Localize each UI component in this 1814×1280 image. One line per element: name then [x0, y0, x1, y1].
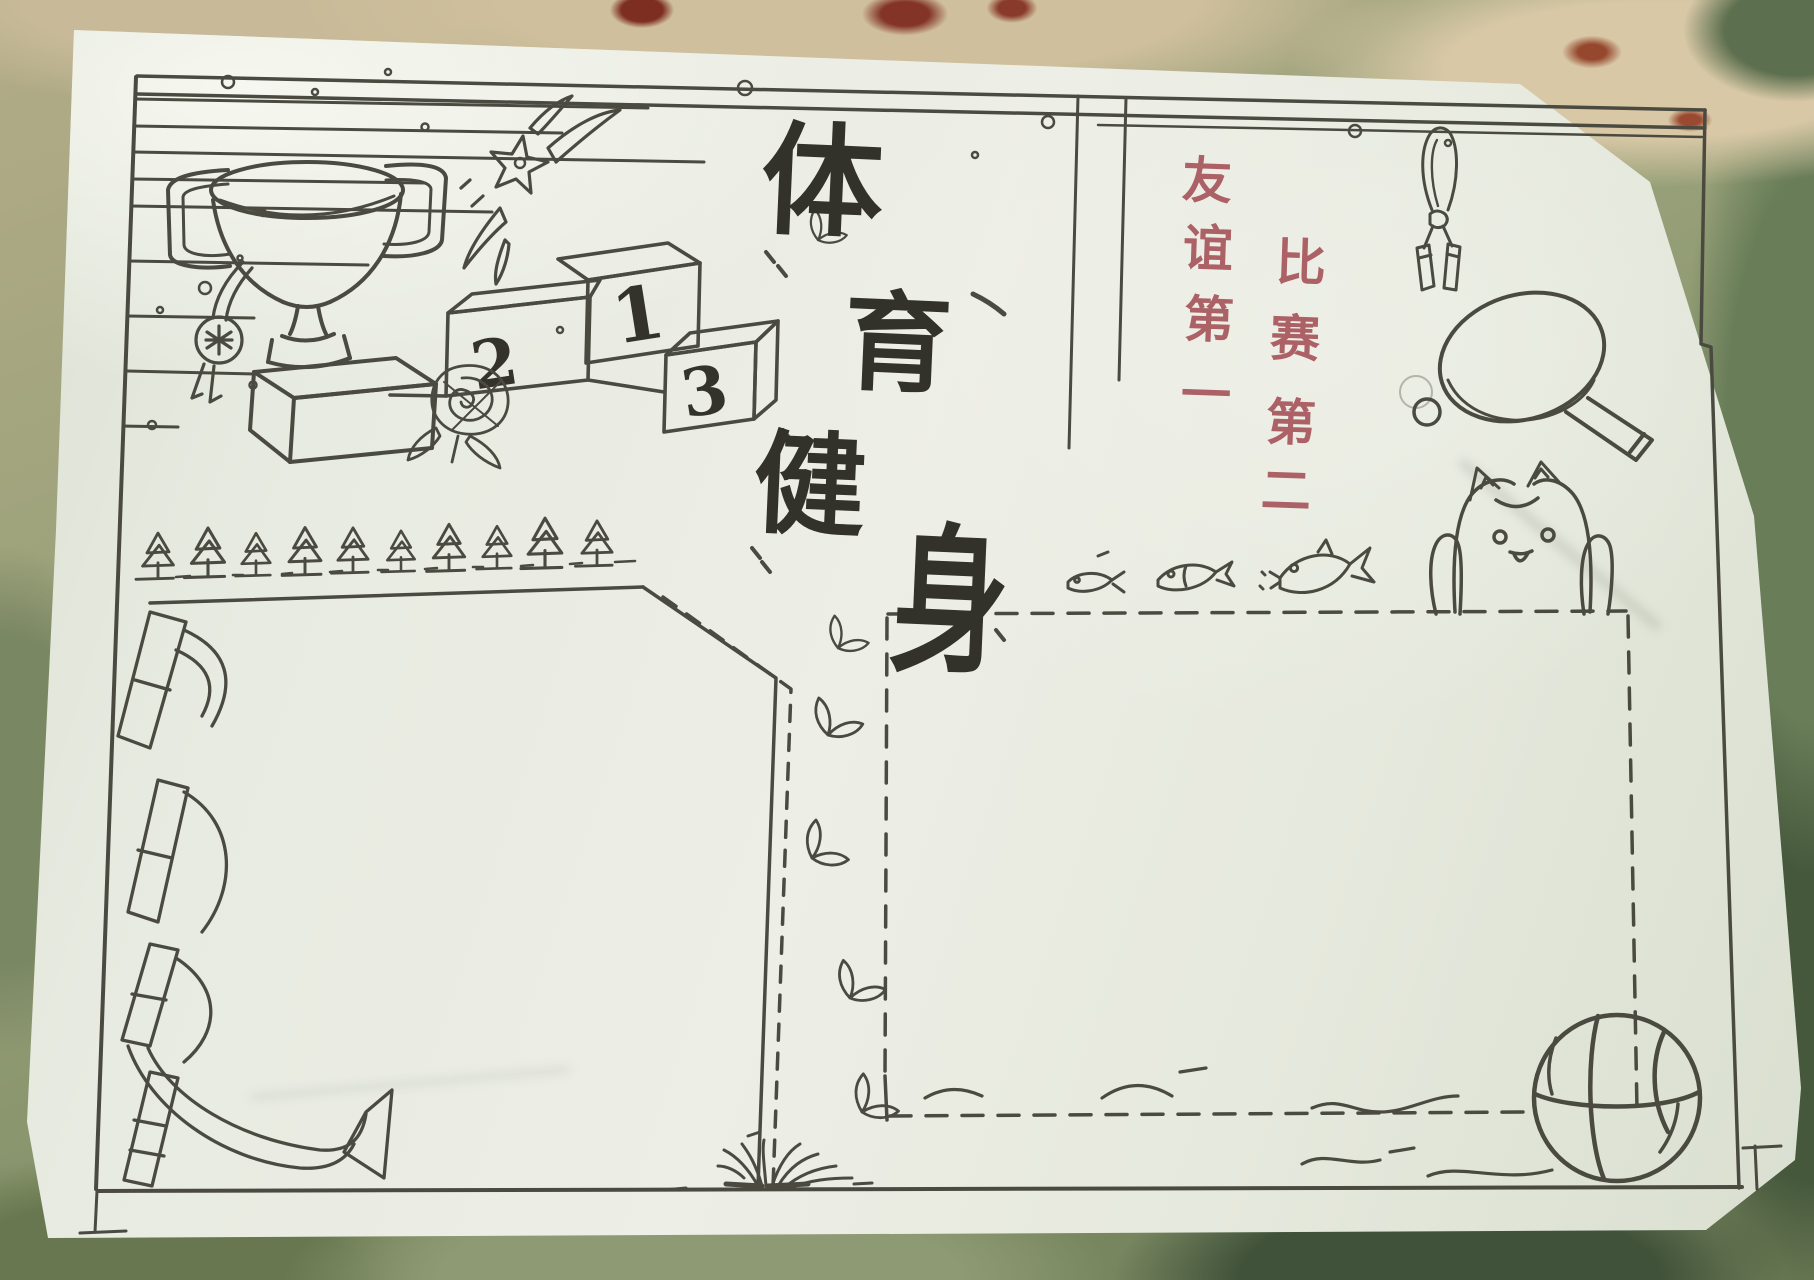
slogan-char: 第	[1183, 294, 1235, 346]
pine-tree-icon	[136, 533, 173, 579]
pine-tree-row	[136, 518, 635, 579]
slogan-char: 第	[1265, 397, 1317, 449]
pine-tree-icon	[575, 521, 612, 566]
fish-icon	[1158, 562, 1234, 590]
cat-drawing	[1431, 462, 1612, 614]
basketball-drawing	[1534, 1015, 1700, 1181]
leaf-icon	[853, 1073, 903, 1120]
pine-tree-icon	[236, 533, 271, 576]
title-char-shen: 身	[887, 520, 1012, 684]
leaf-icon	[803, 819, 856, 869]
water-waves-drawing	[925, 1068, 1552, 1176]
pine-tree-icon	[477, 526, 512, 569]
leaf-icon	[814, 692, 864, 739]
slogan-char: 友	[1181, 155, 1233, 207]
podium-rank-3: 3	[676, 349, 734, 433]
title-char-jian: 健	[751, 428, 868, 545]
grass-tuft-drawing	[664, 1132, 872, 1190]
podium-rank-1: 1	[606, 269, 670, 362]
leaf-icon	[830, 616, 868, 651]
fish-icon	[1068, 552, 1124, 592]
slogan-char: 比	[1275, 237, 1327, 289]
slogan-char: 赛	[1269, 313, 1321, 365]
jump-rope-drawing	[1417, 128, 1460, 290]
speed-lines	[123, 99, 704, 427]
table-tennis-paddle-drawing	[1400, 272, 1652, 460]
pine-tree-icon	[381, 531, 414, 572]
fish-trio-drawing	[1068, 540, 1374, 593]
pine-tree-icon	[282, 528, 321, 576]
pine-tree-icon	[521, 518, 562, 568]
title-char-yu: 育	[841, 288, 954, 401]
slogan-char: 二	[1260, 465, 1312, 517]
shooting-star-drawing	[461, 96, 620, 284]
leaf-icon	[838, 958, 886, 1002]
left-text-box	[150, 587, 791, 1187]
winners-podium-drawing: 1 2 3	[390, 243, 778, 433]
slogan-char: 谊	[1182, 223, 1234, 275]
ribbon-scroll-drawing	[118, 612, 392, 1186]
slogan-char: 一	[1180, 369, 1232, 421]
pine-tree-icon	[184, 528, 224, 578]
photographed-hand-drawn-poster: 1 2 3	[0, 0, 1814, 1280]
fish-icon	[1260, 540, 1374, 593]
title-char-ti: 体	[759, 118, 886, 245]
pine-tree-icon	[331, 528, 368, 573]
pine-tree-icon	[427, 524, 465, 571]
